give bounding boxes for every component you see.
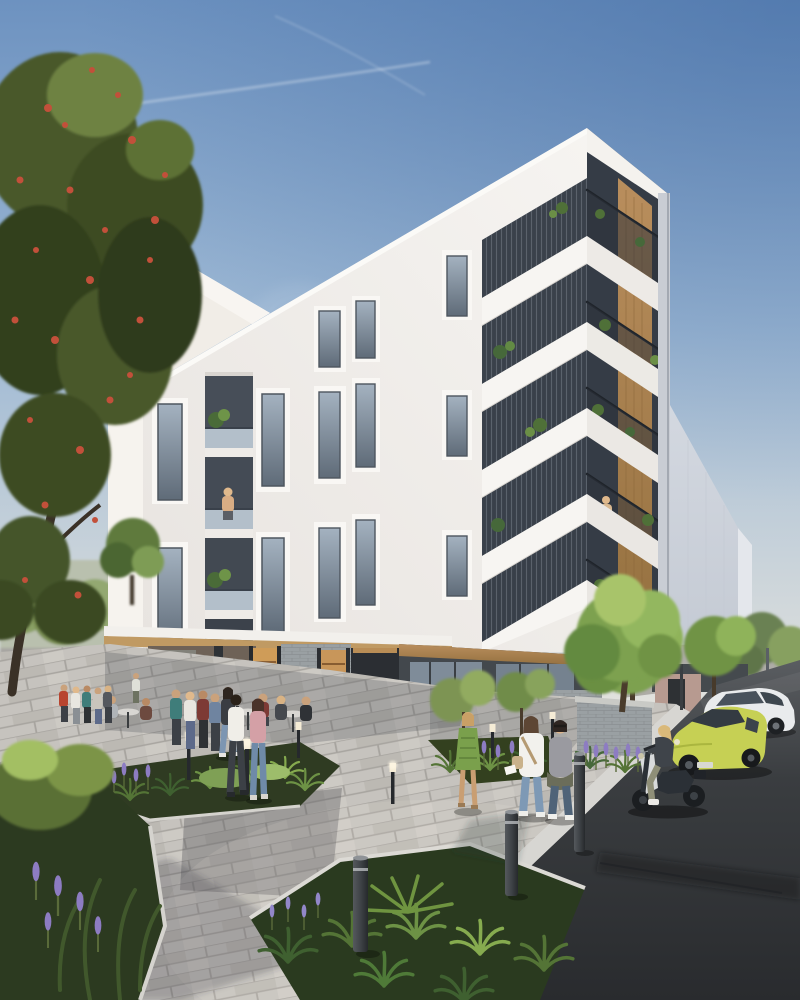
render-canvas bbox=[0, 0, 800, 1000]
window-column bbox=[314, 306, 346, 622]
recessed-balcony-column bbox=[205, 372, 253, 652]
balcony bbox=[205, 457, 253, 538]
license-plate bbox=[697, 762, 713, 768]
corner-balcony-recesses bbox=[482, 178, 587, 652]
architectural-rendering: Modern white mid-rise apartment building… bbox=[0, 0, 800, 1000]
window-column bbox=[442, 250, 472, 600]
seated-guest bbox=[300, 697, 312, 722]
balcony bbox=[205, 376, 253, 457]
balcony-resident bbox=[222, 488, 234, 521]
headlamp bbox=[638, 753, 644, 759]
seated-guest bbox=[275, 696, 287, 721]
sign-post bbox=[680, 664, 683, 710]
balcony bbox=[205, 538, 253, 619]
headlight bbox=[674, 739, 680, 745]
window-column bbox=[352, 296, 380, 610]
